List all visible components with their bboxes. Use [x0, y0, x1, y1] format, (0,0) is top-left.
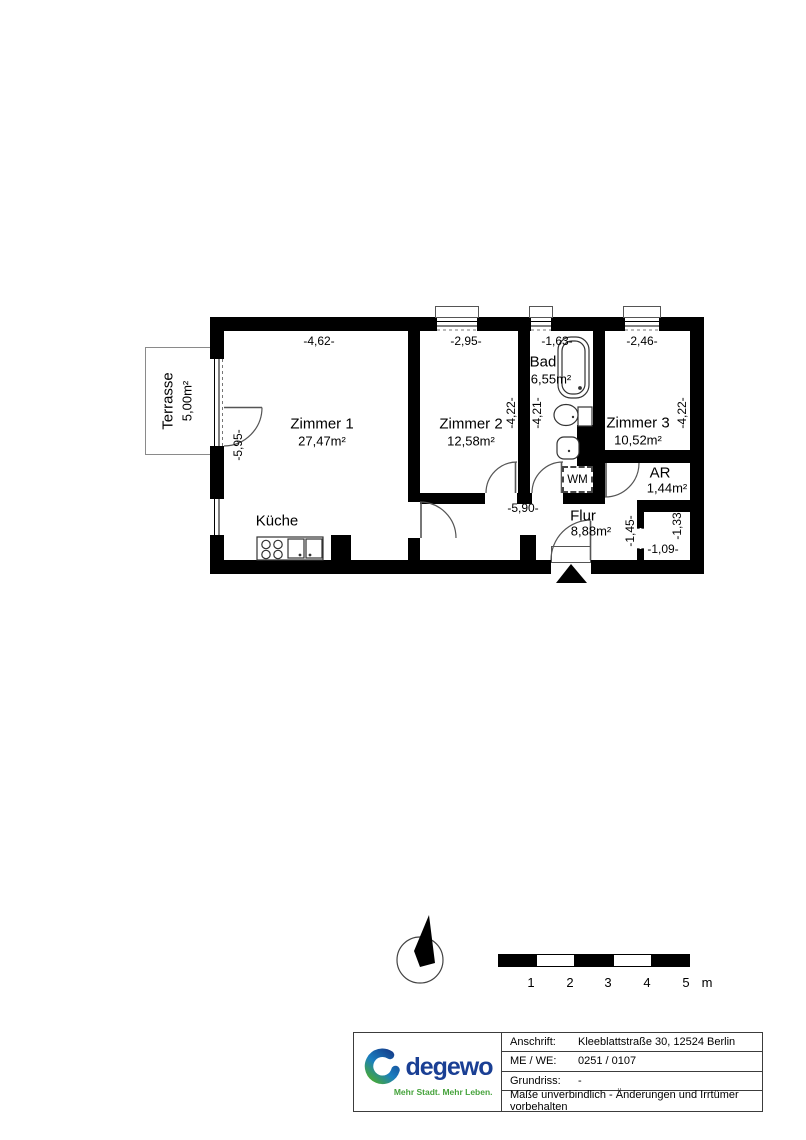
row-label: Grundriss:	[502, 1075, 574, 1087]
degewo-logo: degewo Mehr Stadt. Mehr Leben.	[362, 1048, 492, 1097]
scale-tick-2: 2	[566, 975, 573, 990]
wall-shaft	[577, 425, 593, 470]
terrasse-outline	[145, 347, 211, 455]
title-block-disclaimer-row: Maße unverbindlich - Änderungen und Irrt…	[502, 1091, 762, 1111]
room-label-bad: Bad	[530, 355, 557, 370]
dim-zimmer2-depth: -4,22-	[505, 397, 517, 428]
wall-flur-c	[563, 493, 605, 504]
logo-cell: degewo Mehr Stadt. Mehr Leben.	[354, 1033, 502, 1111]
wall-z1-z2	[408, 331, 420, 502]
room-area-flur: 8,88m²	[571, 525, 611, 538]
wm-label: WM	[567, 474, 587, 486]
scale-segment	[575, 955, 612, 966]
dim-zimmer2-width: -2,95-	[450, 335, 481, 347]
window-sill-bad	[529, 306, 553, 318]
window-zimmer3	[625, 317, 659, 331]
scale-tick-4: 4	[643, 975, 650, 990]
floorplan-page: Terrasse 5,00m²	[0, 0, 806, 1140]
room-label-ar: AR	[650, 466, 671, 481]
room-label-zimmer2: Zimmer 2	[439, 417, 502, 432]
window-sill-zimmer3	[623, 306, 661, 318]
dim-zimmer3-depth: -4,22-	[676, 397, 688, 428]
wall-z1-flur-stub	[408, 538, 420, 560]
room-area-zimmer2: 12,58m²	[447, 435, 495, 448]
dim-flur-width: -5,90-	[507, 502, 538, 514]
terrasse-label: Terrasse	[161, 372, 176, 430]
window-niche	[637, 528, 644, 549]
title-block-rows: Anschrift: Kleeblattstraße 30, 12524 Ber…	[502, 1033, 762, 1111]
terrasse-area: 5,00m²	[181, 381, 194, 421]
dim-bad-width: -1,63-	[541, 335, 572, 347]
scale-segment	[652, 955, 689, 966]
window-sill-zimmer2	[435, 306, 479, 318]
degewo-swirl-icon	[362, 1048, 402, 1088]
window-zimmer2	[437, 317, 477, 331]
room-label-zimmer3: Zimmer 3	[606, 416, 669, 431]
title-block: degewo Mehr Stadt. Mehr Leben. Anschrift…	[353, 1032, 763, 1112]
wall-bad-z3	[593, 331, 605, 502]
washing-machine-icon: WM	[562, 466, 593, 493]
scale-tick-1: 1	[527, 975, 534, 990]
row-value: Kleeblattstraße 30, 12524 Berlin	[574, 1036, 735, 1048]
window-kueche	[210, 499, 224, 535]
wall-z3-bottom	[605, 450, 690, 463]
window-bad	[531, 317, 551, 331]
room-area-bad: 6,55m²	[531, 373, 571, 386]
wall-outer-bottom	[210, 560, 704, 574]
scale-bar	[498, 954, 690, 967]
brand-tagline: Mehr Stadt. Mehr Leben.	[394, 1087, 493, 1097]
room-label-zimmer1: Zimmer 1	[290, 417, 353, 432]
wall-entry-stub	[520, 535, 536, 560]
door-gap-kueche-flur	[408, 502, 420, 538]
row-value: 0251 / 0107	[574, 1055, 636, 1067]
room-label-flur: Flur	[570, 509, 596, 524]
title-block-row: Anschrift: Kleeblattstraße 30, 12524 Ber…	[502, 1033, 762, 1052]
wall-z2-bad	[518, 331, 530, 493]
scale-segment	[536, 955, 575, 966]
wall-flur-a	[413, 493, 485, 504]
door-gap-zimmer3	[605, 463, 639, 476]
wall-outer-right	[690, 317, 704, 574]
room-area-ar: 1,44m²	[647, 482, 687, 495]
scale-tick-3: 3	[604, 975, 611, 990]
scale-unit: m	[702, 975, 713, 990]
dim-niche-width: -1,09-	[647, 543, 678, 555]
brand-wordmark: degewo	[405, 1053, 492, 1082]
room-label-kueche: Küche	[256, 514, 299, 529]
room-area-zimmer3: 10,52m²	[614, 434, 662, 447]
terrace-door-opening	[210, 359, 224, 446]
entrance-sill	[551, 546, 591, 563]
dim-zimmer1-depth: -5,95-	[232, 429, 244, 460]
toilet-icon	[554, 405, 592, 427]
disclaimer-text: Maße unverbindlich - Änderungen und Irrt…	[502, 1089, 762, 1113]
scale-segment	[499, 955, 536, 966]
kitchen-counter-icon	[257, 537, 323, 560]
wall-kitchen-stub	[331, 535, 351, 560]
title-block-row: ME / WE: 0251 / 0107	[502, 1052, 762, 1071]
scale-segment	[613, 955, 652, 966]
scale-tick-5: 5	[682, 975, 689, 990]
dim-zimmer1-width: -4,62-	[303, 335, 334, 347]
row-value: -	[574, 1075, 582, 1087]
dim-niche-height: -1,45-	[624, 515, 636, 546]
north-arrow-icon	[397, 915, 443, 983]
dim-bad-depth: -4,21-	[531, 397, 543, 428]
sink-icon	[557, 437, 579, 459]
dim-zimmer3-width: -2,46-	[626, 335, 657, 347]
row-label: Anschrift:	[502, 1036, 574, 1048]
row-label: ME / WE:	[502, 1055, 574, 1067]
room-area-zimmer1: 27,47m²	[298, 435, 346, 448]
dim-niche-depth: -1,33-	[671, 508, 683, 539]
